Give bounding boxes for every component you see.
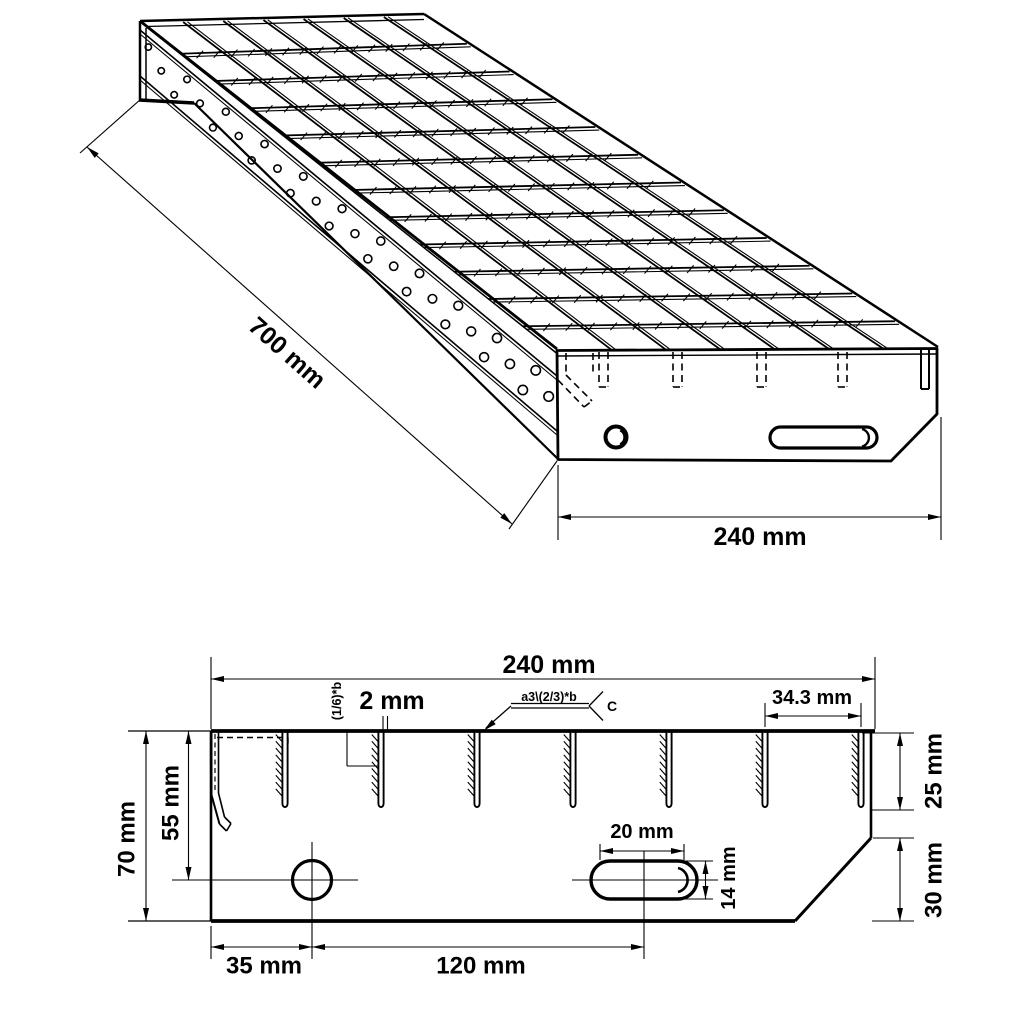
bar-height-dimension-label: 25 mm bbox=[921, 733, 948, 809]
bar-thickness-dimension-label: 2 mm bbox=[359, 687, 424, 715]
hole-depth-dimension-label: 55 mm bbox=[158, 765, 185, 841]
weld-symbol-text: a3\(2/3)*b bbox=[521, 690, 577, 704]
weld-tail-text: C bbox=[607, 698, 617, 714]
hole-offset-dimension-label: 35 mm bbox=[226, 953, 302, 980]
slot-height-dimension-label: 14 mm bbox=[718, 846, 740, 909]
section-view: 240 mm 34.3 mm 2 mm (1/6)*b a3\(2/3)*b C… bbox=[114, 651, 948, 980]
grating-stair-tread-drawing: 700 mm 240 mm 240 mm 34.3 mm 2 mm (1/6)*… bbox=[0, 0, 1024, 1024]
isometric-view: 700 mm 240 mm bbox=[80, 14, 941, 551]
isometric-geometry bbox=[80, 14, 941, 540]
slot-length-dimension-label: 20 mm bbox=[610, 821, 673, 843]
iso-width-dimension-label: 240 mm bbox=[713, 523, 806, 551]
nosing-note-label: (1/6)*b bbox=[330, 682, 344, 721]
bar-spacing-dimension-label: 34.3 mm bbox=[772, 687, 852, 709]
total-height-dimension-label: 70 mm bbox=[114, 801, 141, 877]
technical-drawing-page: 700 mm 240 mm 240 mm 34.3 mm 2 mm (1/6)*… bbox=[0, 0, 1024, 1024]
slot-offset-dimension-label: 120 mm bbox=[436, 953, 525, 980]
section-width-dimension-label: 240 mm bbox=[502, 651, 595, 679]
chamfer-height-dimension-label: 30 mm bbox=[921, 842, 948, 918]
